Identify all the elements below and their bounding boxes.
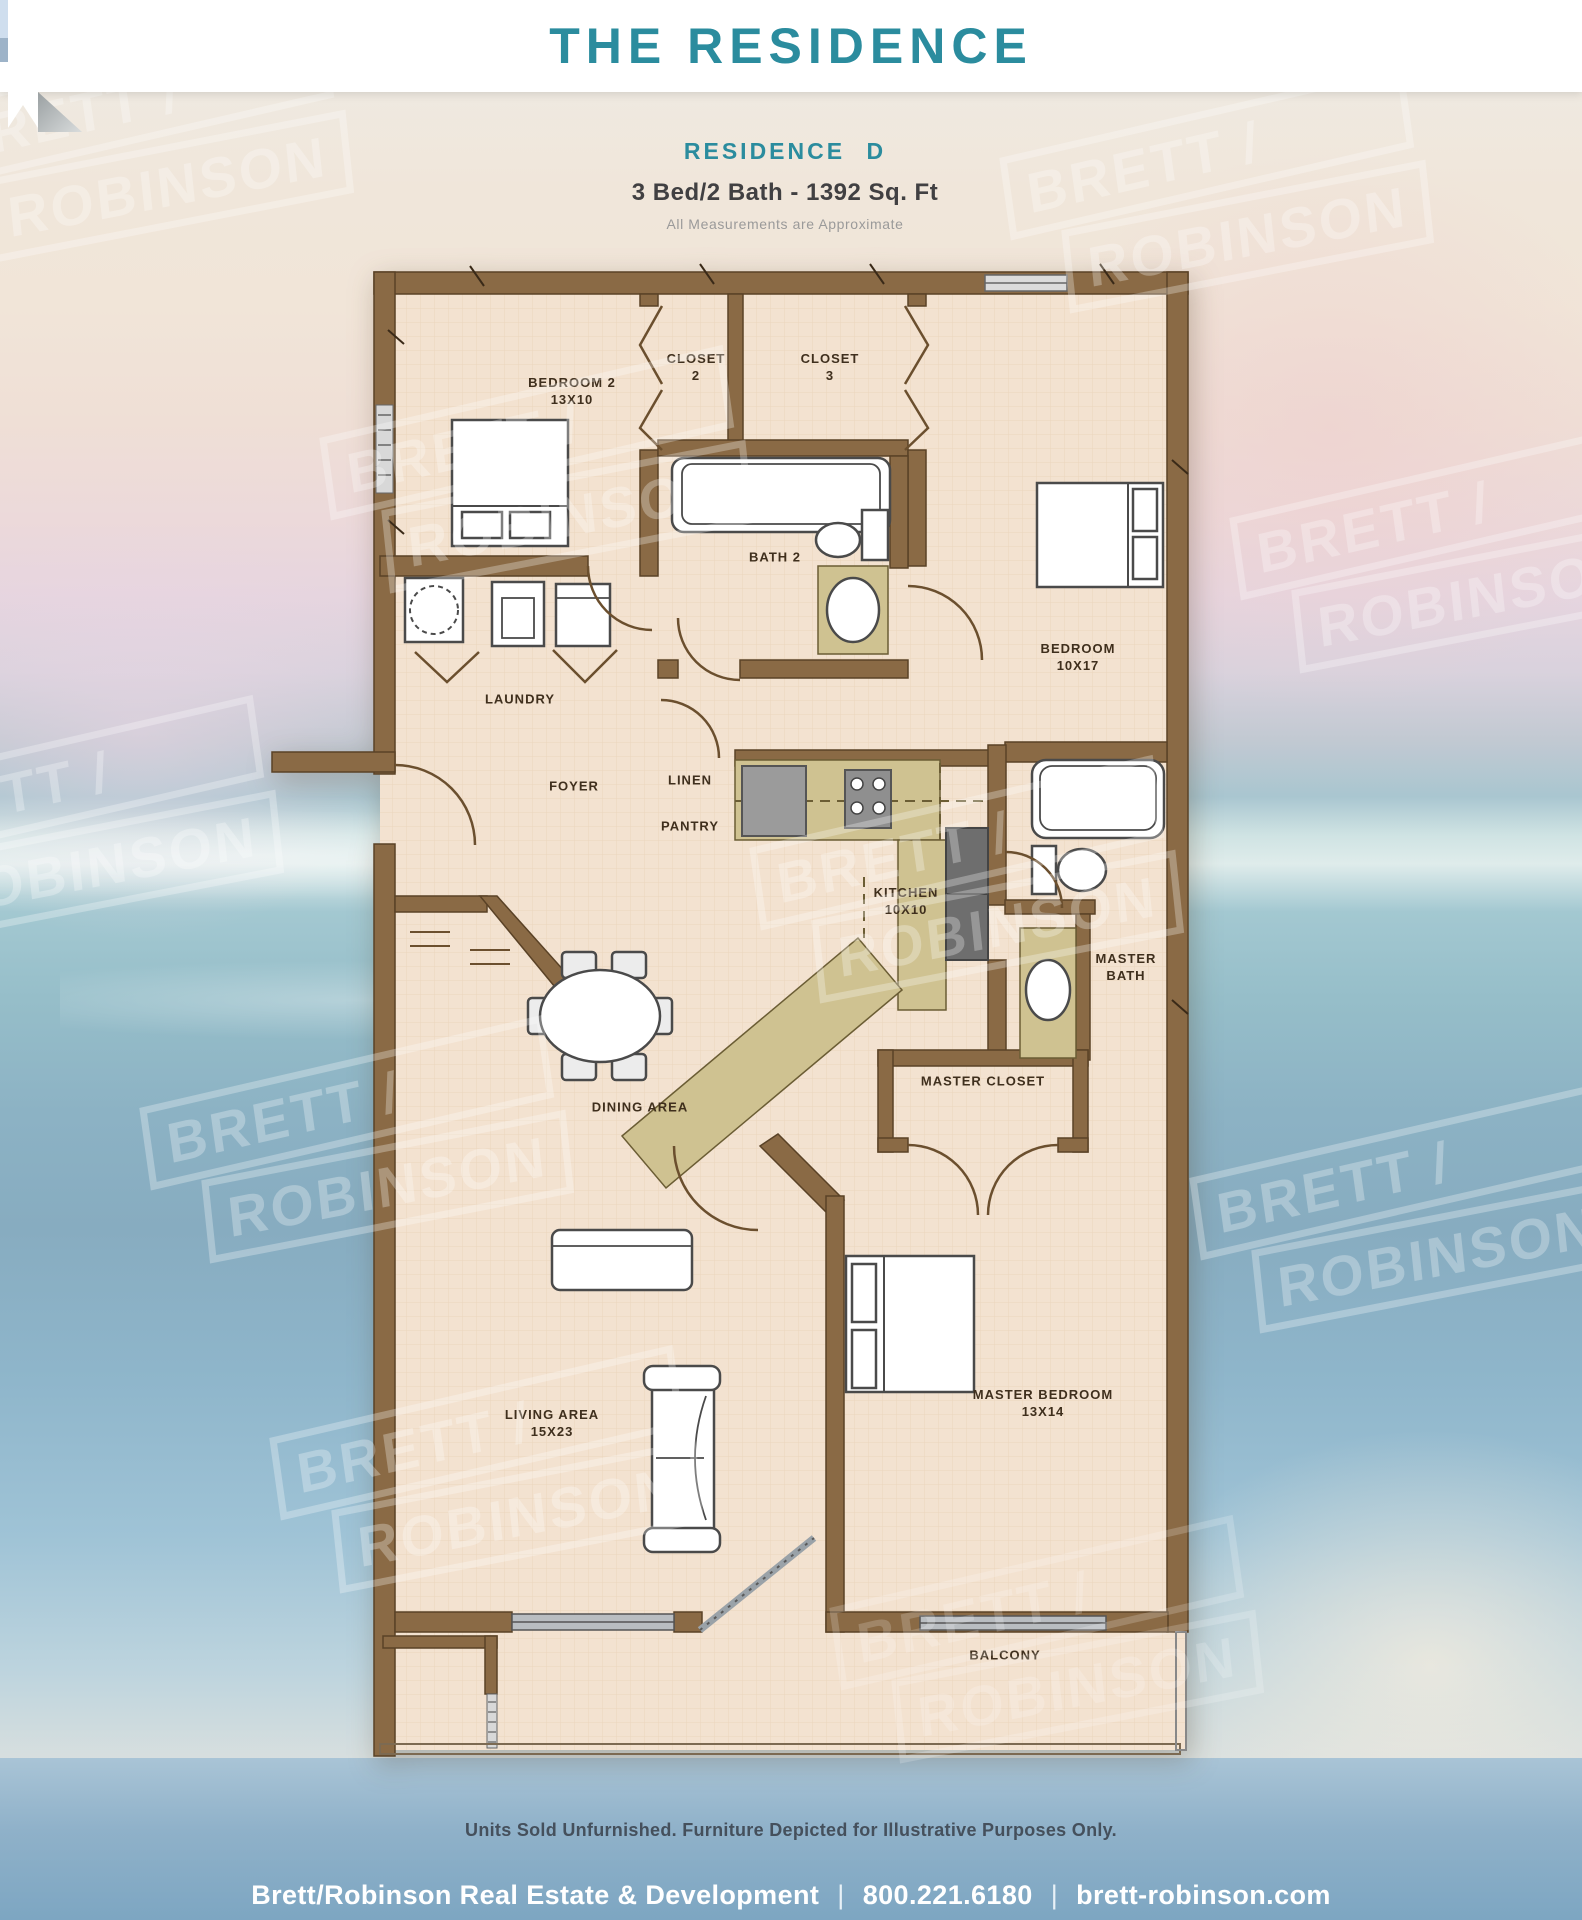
company-name: Brett/Robinson Real Estate & Development (251, 1880, 819, 1910)
residence-note: All Measurements are Approximate (0, 216, 1570, 232)
room-dims: 10X10 (885, 902, 928, 919)
room-name: LAUNDRY (485, 692, 555, 709)
loveseat-icon (552, 1230, 692, 1290)
room-label-bedroom: BEDROOM 10X17 (1041, 641, 1116, 675)
room-number: 3 (826, 368, 834, 385)
sofa-icon (644, 1366, 720, 1552)
room-name: PANTRY (661, 819, 719, 836)
room-label-master-closet: MASTER CLOSET (921, 1074, 1045, 1091)
room-name: LINEN (668, 773, 712, 790)
footer-contact: Brett/Robinson Real Estate & Development… (0, 1880, 1582, 1911)
room-name: MASTER CLOSET (921, 1074, 1045, 1091)
room-name: BEDROOM (1041, 641, 1116, 658)
plan-header: RESIDENCE D 3 Bed/2 Bath - 1392 Sq. Ft A… (0, 138, 1570, 232)
room-label-master-bedroom: MASTER BEDROOM 13X14 (973, 1387, 1113, 1421)
dryer-icon (556, 584, 610, 646)
room-label-living: LIVING AREA 15X23 (505, 1407, 599, 1441)
room-number: 2 (692, 368, 700, 385)
room-dims: 15X23 (531, 1424, 574, 1441)
room-dims: 13X10 (551, 392, 594, 409)
room-label-closet2: CLOSET 2 (667, 351, 726, 385)
website-link[interactable]: brett-robinson.com (1076, 1880, 1331, 1910)
disclaimer-text: Units Sold Unfurnished. Furniture Depict… (0, 1820, 1582, 1841)
room-name: LIVING AREA (505, 1407, 599, 1424)
bathtub-icon (672, 458, 890, 532)
sink-icon (1032, 846, 1056, 894)
room-label-pantry: PANTRY (661, 819, 719, 836)
room-label-laundry: LAUNDRY (485, 692, 555, 709)
room-dims: 13X14 (1022, 1404, 1065, 1421)
room-label-bedroom2: BEDROOM 2 13X10 (528, 375, 616, 409)
stove-icon (845, 770, 891, 828)
room-name: CLOSET (801, 351, 860, 368)
toilet-icon (1058, 849, 1106, 891)
room-label-bath2: BATH 2 (749, 550, 801, 567)
toilet-icon (816, 523, 860, 557)
room-name: MASTER (1096, 951, 1157, 968)
room-label-balcony: BALCONY (969, 1648, 1040, 1665)
room-label-foyer: FOYER (549, 779, 599, 796)
room-name: MASTER BEDROOM (973, 1387, 1113, 1404)
washer-icon (492, 582, 544, 646)
bed-icon (846, 1256, 974, 1392)
vanity-sink-icon (827, 578, 879, 642)
room-label-closet3: CLOSET 3 (801, 351, 860, 385)
sink-icon (862, 510, 888, 560)
floor-plan (0, 0, 1582, 1920)
room-label-linen: LINEN (668, 773, 712, 790)
bed-icon (1037, 483, 1163, 587)
room-name: BALCONY (969, 1648, 1040, 1665)
room-name: BATH 2 (749, 550, 801, 567)
bathtub-icon (1032, 760, 1164, 838)
bed-icon (452, 420, 568, 546)
separator: | (819, 1880, 862, 1910)
page-title: THE RESIDENCE (549, 17, 1033, 75)
vanity-sink-icon (1026, 960, 1070, 1020)
phone-number: 800.221.6180 (863, 1880, 1033, 1910)
room-dims: 10X17 (1057, 658, 1100, 675)
residence-name: RESIDENCE D (0, 138, 1570, 165)
room-label-master-bath: MASTER BATH (1096, 951, 1157, 985)
room-label-dining: DINING AREA (592, 1100, 688, 1117)
room-name: KITCHEN (874, 885, 939, 902)
separator: | (1033, 1880, 1076, 1910)
residence-specs: 3 Bed/2 Bath - 1392 Sq. Ft (0, 179, 1570, 207)
header-band: THE RESIDENCE (0, 0, 1582, 92)
laundry-sink-icon (405, 578, 463, 642)
room-name: DINING AREA (592, 1100, 688, 1117)
room-name: BATH (1106, 968, 1145, 985)
room-name: FOYER (549, 779, 599, 796)
room-name: BEDROOM 2 (528, 375, 616, 392)
refrigerator-icon (742, 766, 806, 836)
room-name: CLOSET (667, 351, 726, 368)
room-label-kitchen: KITCHEN 10X10 (874, 885, 939, 919)
